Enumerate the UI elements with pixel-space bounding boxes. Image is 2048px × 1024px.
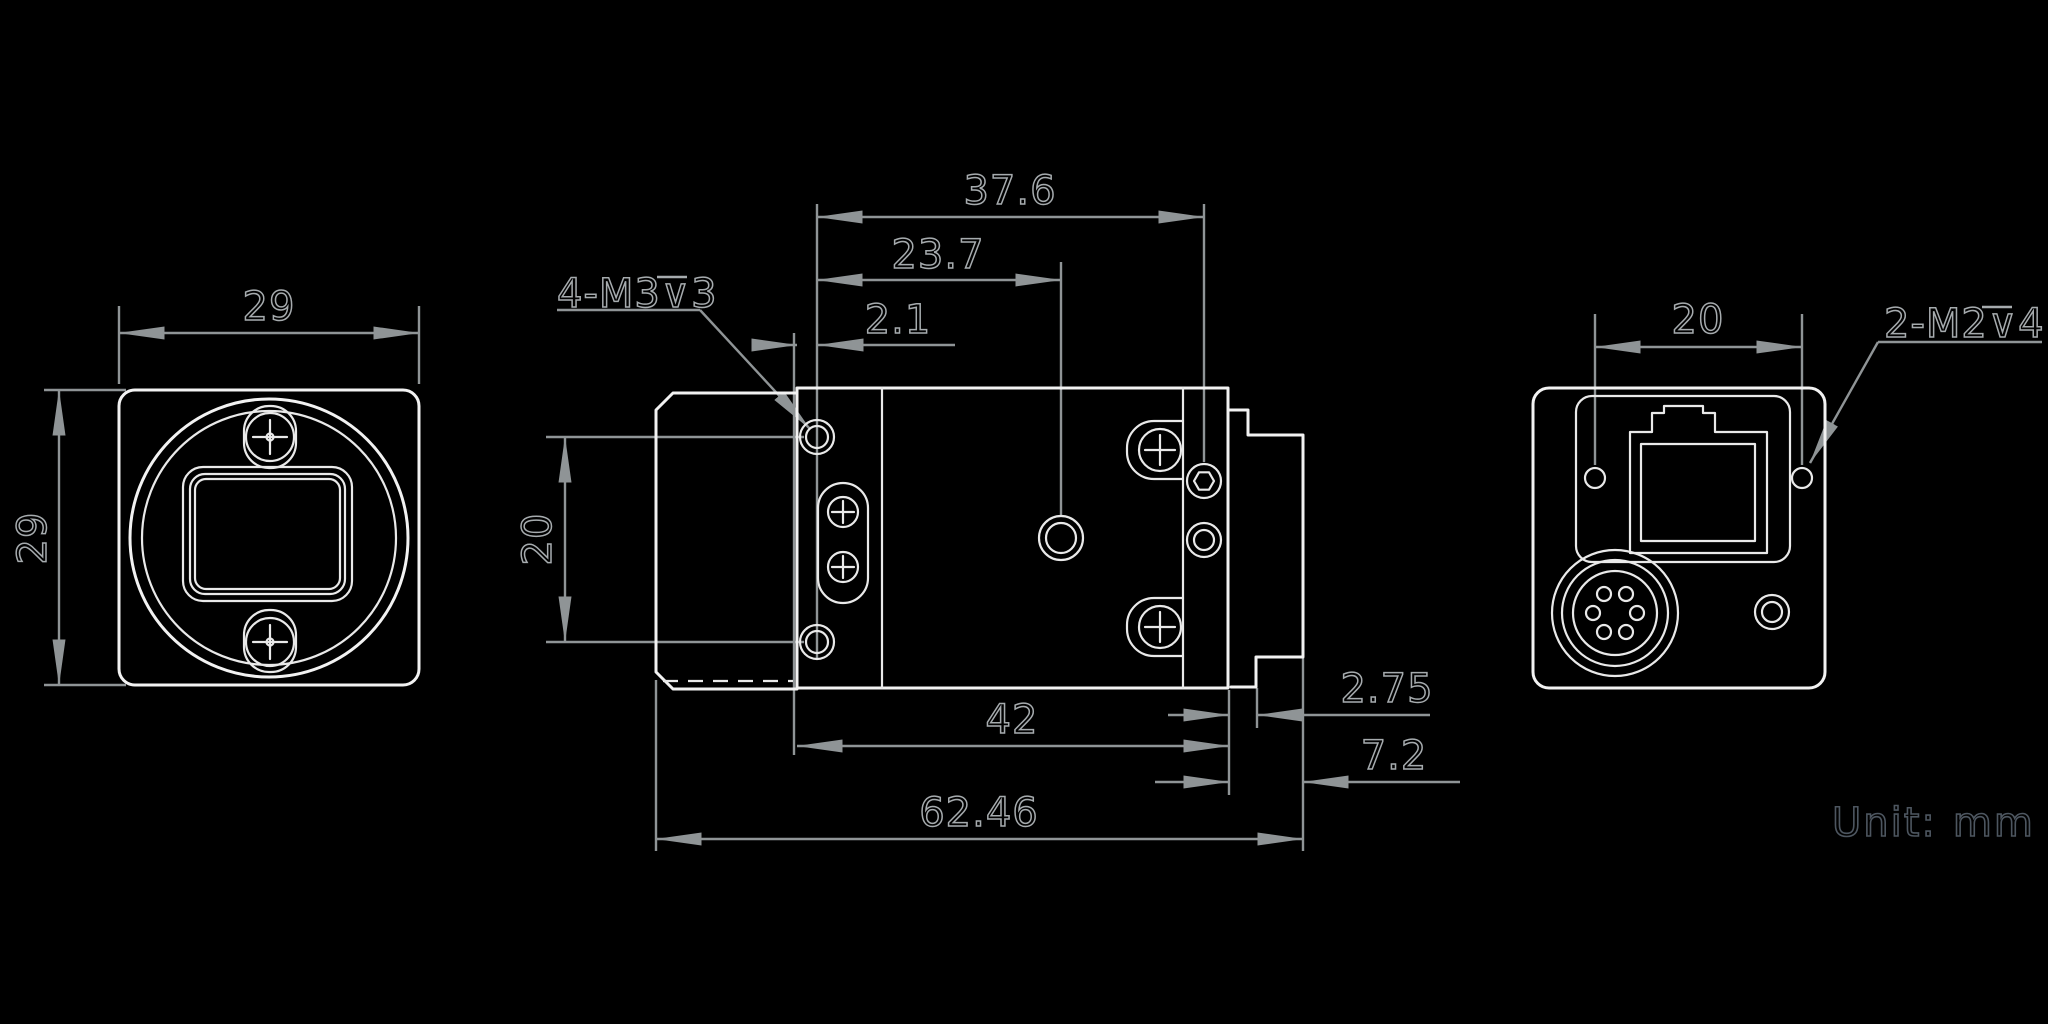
rear-connector-block bbox=[1228, 410, 1303, 687]
dim-text-2-1: 2.1 bbox=[865, 297, 932, 343]
dim-text-23-7: 23.7 bbox=[891, 232, 984, 278]
dim-text-front-width: 29 bbox=[243, 284, 296, 330]
connector-pin bbox=[1630, 606, 1644, 620]
front-view bbox=[119, 390, 419, 685]
sensor-window-mid bbox=[190, 474, 345, 594]
sensor-window-inner bbox=[195, 479, 340, 589]
hole-icon bbox=[1187, 523, 1221, 557]
thread-suffix: 4 bbox=[2018, 301, 2044, 347]
back-view bbox=[1533, 388, 1825, 688]
rj45-port bbox=[1630, 406, 1767, 553]
dim-text-20-side: 20 bbox=[515, 513, 561, 566]
power-connector bbox=[1552, 550, 1678, 676]
unit-label: Unit: bbox=[1832, 800, 1937, 846]
mount-hole-icon bbox=[1039, 516, 1083, 560]
label-thread-m3: 4-M3∨3 bbox=[557, 271, 718, 317]
camera-dimension-drawing: 29 29 4-M3∨3 37.6 23.7 2.1 20 42 62.46 2… bbox=[0, 0, 2048, 1024]
m2-hole-icon bbox=[1792, 468, 1812, 488]
dim-text-42: 42 bbox=[986, 697, 1039, 743]
dim-text-20-back: 20 bbox=[1672, 297, 1725, 343]
dim-text-front-height: 29 bbox=[10, 512, 56, 565]
dim-text-37-6: 37.6 bbox=[963, 168, 1056, 214]
screw-icon bbox=[828, 552, 858, 582]
drawing-canvas: 29 29 4-M3∨3 37.6 23.7 2.1 20 42 62.46 2… bbox=[0, 0, 2048, 1024]
connector-pin bbox=[1586, 606, 1600, 620]
m2-hole-icon bbox=[1585, 468, 1605, 488]
screw-icon bbox=[828, 497, 858, 527]
camera-side-body bbox=[797, 388, 1228, 688]
unit-note: Unit:mm bbox=[1832, 800, 2035, 846]
label-thread-m2: 2-M2∨4 bbox=[1884, 301, 2045, 347]
dim-text-62-46: 62.46 bbox=[919, 790, 1039, 836]
thread-prefix: 2-M2 bbox=[1884, 301, 1988, 347]
dim-text-7-2: 7.2 bbox=[1361, 733, 1428, 779]
connector-pin bbox=[1619, 625, 1633, 639]
dim-text-2-75: 2.75 bbox=[1340, 666, 1433, 712]
side-view bbox=[656, 388, 1303, 689]
connector-pin bbox=[1619, 587, 1633, 601]
screw-icon bbox=[1127, 598, 1183, 656]
sensor-window-outer bbox=[183, 467, 352, 601]
connector-bezel bbox=[1576, 396, 1790, 562]
leader-arrow-m2 bbox=[1810, 342, 1878, 463]
dimension-labels: 29 29 4-M3∨3 37.6 23.7 2.1 20 42 62.46 2… bbox=[10, 168, 2045, 846]
hex-screw-icon bbox=[1187, 464, 1221, 498]
thread-suffix: 3 bbox=[691, 271, 717, 317]
dimension-lines-front bbox=[44, 306, 419, 685]
connector-pin bbox=[1597, 625, 1611, 639]
screw-slot bbox=[818, 483, 868, 603]
hole-icon bbox=[1755, 595, 1789, 629]
screw-icon bbox=[1127, 421, 1183, 479]
connector-pin bbox=[1597, 587, 1611, 601]
unit-value: mm bbox=[1953, 800, 2035, 846]
screw-icon bbox=[244, 406, 296, 468]
thread-prefix: 4-M3 bbox=[557, 271, 661, 317]
